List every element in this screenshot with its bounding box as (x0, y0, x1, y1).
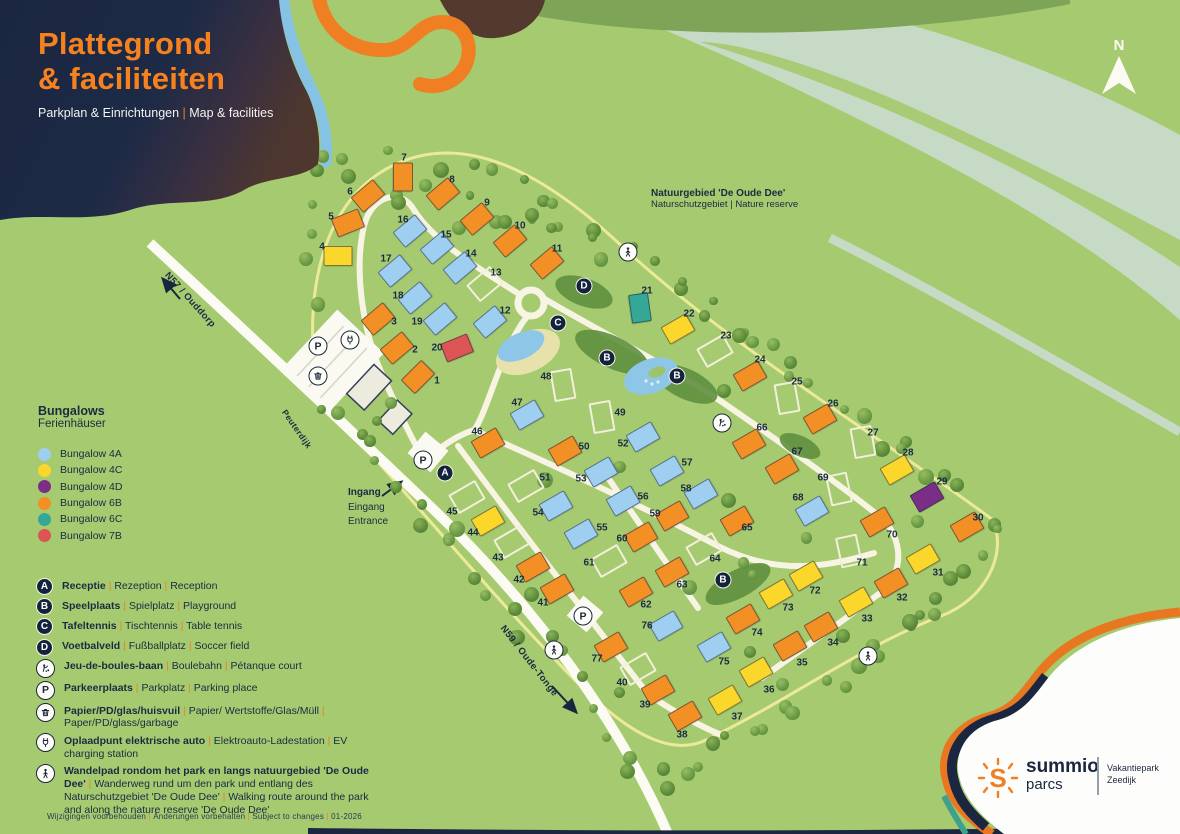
bungalow-49-number: 49 (614, 408, 625, 419)
nature-reserve-label: Natuurgebied 'De Oude Dee' Naturschutzge… (651, 188, 798, 210)
legend-facility-text: Receptie | Rezeption | Reception (62, 578, 217, 592)
tree (650, 256, 660, 266)
legend-bungalow-item: Bungalow 4A (38, 446, 122, 462)
d-icon: D (36, 639, 53, 656)
bungalow-12-number: 12 (499, 306, 510, 317)
park-map-poster: 1234567891011121314151617181920212223242… (0, 0, 1180, 834)
bungalow-68-number: 68 (792, 493, 803, 504)
facility-legend: AReceptie | Rezeption | ReceptionBSpeelp… (36, 578, 388, 820)
bungalow-44-number: 44 (467, 528, 478, 539)
legend-facility-text: Speelplaats | Spielplatz | Playground (62, 598, 236, 612)
bungalow-14-number: 14 (465, 249, 476, 260)
bungalow-23-number: 23 (720, 331, 731, 342)
page-subtitle: Parkplan & Einrichtungen | Map & facilit… (38, 106, 273, 120)
legend-facility-row: PParkeerplaats | Parkplatz | Parking pla… (36, 681, 388, 700)
bungalow-39-number: 39 (639, 700, 650, 711)
bungalow-56-number: 56 (637, 492, 648, 503)
legend-facility-row: BSpeelplaats | Spielplatz | Playground (36, 598, 388, 615)
bungalow-47-number: 47 (511, 398, 522, 409)
bungalow-40-number: 40 (616, 678, 627, 689)
legend-swatch-4A (38, 448, 51, 461)
bungalow-43-number: 43 (492, 553, 503, 564)
tree (978, 550, 989, 561)
bungalow-3-number: 3 (391, 317, 397, 328)
title-line-1: Plattegrond (38, 26, 273, 61)
tree (721, 493, 736, 508)
tree (784, 356, 797, 369)
tree (746, 336, 758, 348)
bungalow-55-number: 55 (596, 523, 607, 534)
bungalow-64-number: 64 (709, 554, 720, 565)
bungalow-72-number: 72 (809, 586, 820, 597)
page-title: Plattegrond & faciliteiten Parkplan & Ei… (38, 26, 273, 120)
bungalow-legend-title: Bungalows (38, 404, 122, 418)
bungalow-4-marker (324, 246, 353, 266)
bungalow-61-number: 61 (583, 558, 594, 569)
title-line-2: & faciliteiten (38, 61, 273, 96)
tree (449, 521, 465, 537)
north-arrow-glyph (1102, 56, 1136, 94)
legend-facility-row: Papier/PD/glas/huisvuil | Papier/ Wertst… (36, 703, 388, 730)
bungalow-69-number: 69 (817, 473, 828, 484)
bungalow-48-number: 48 (540, 372, 551, 383)
walk-icon (36, 764, 55, 783)
entrance-label-nl: Ingang (348, 486, 388, 501)
walk-icon (545, 641, 564, 660)
bungalow-18-number: 18 (392, 291, 403, 302)
legend-facility-row: AReceptie | Rezeption | Reception (36, 578, 388, 595)
bungalow-31-number: 31 (932, 568, 943, 579)
tree (311, 297, 326, 312)
bungalow-11-number: 11 (552, 244, 563, 255)
bungalow-71-number: 71 (856, 558, 867, 569)
bungalow-36-number: 36 (763, 685, 774, 696)
c-icon: C (550, 315, 567, 332)
p-icon: P (36, 681, 55, 700)
legend-facility-row: Jeu-de-boules-baan | Boulebahn | Pétanqu… (36, 659, 388, 678)
a-icon: A (36, 578, 53, 595)
bungalow-33-number: 33 (861, 614, 872, 625)
legend-swatch-6B (38, 497, 51, 510)
legend-facility-text: Tafeltennis | Tischtennis | Table tennis (62, 618, 242, 632)
bungalow-35-number: 35 (796, 658, 807, 669)
bungalow-42-number: 42 (513, 575, 524, 586)
summio-sun-letter: S (989, 763, 1006, 793)
legend-facility-row: CTafeltennis | Tischtennis | Table tenni… (36, 618, 388, 635)
bungalow-66-number: 66 (756, 423, 767, 434)
tree-line-top (470, 0, 1070, 33)
nature-reserve-label-sub: Naturschutzgebiet | Nature reserve (651, 199, 798, 210)
boules-icon (36, 659, 55, 678)
bungalow-21-marker (628, 292, 652, 324)
bungalow-62-number: 62 (640, 600, 651, 611)
bungalow-76-number: 76 (641, 621, 652, 632)
b-icon: B (36, 598, 53, 615)
bungalow-32-number: 32 (896, 593, 907, 604)
tree (744, 646, 756, 658)
tree (776, 678, 789, 691)
tree (480, 590, 491, 601)
walk-icon (859, 647, 878, 666)
brand-name-parcs: parcs (1026, 776, 1063, 793)
bungalow-53-number: 53 (575, 474, 586, 485)
b-icon: B (715, 572, 732, 589)
tree (750, 726, 760, 736)
bungalow-legend-items: Bungalow 4ABungalow 4CBungalow 4DBungalo… (38, 446, 122, 544)
walk-icon (619, 243, 638, 262)
north-arrow: N (1095, 34, 1145, 98)
tree (299, 252, 313, 266)
tree (874, 441, 890, 457)
legend-bungalow-label: Bungalow 4A (60, 448, 122, 460)
tree (720, 731, 729, 740)
tree (911, 515, 924, 528)
tree (706, 736, 720, 750)
brand-park-line2: Zeedijk (1107, 774, 1159, 786)
tree (620, 764, 635, 779)
p-icon: P (574, 607, 593, 626)
bungalow-74-number: 74 (751, 628, 762, 639)
bungalow-63-number: 63 (676, 580, 687, 591)
legend-swatch-6C (38, 513, 51, 526)
legend-bungalow-item: Bungalow 6B (38, 495, 122, 511)
legend-bungalow-label: Bungalow 6B (60, 497, 122, 509)
bungalow-17-number: 17 (380, 254, 391, 265)
trash-icon (36, 703, 55, 722)
tree (594, 252, 608, 266)
bungalow-52-number: 52 (617, 439, 628, 450)
legend-swatch-7B (38, 529, 51, 542)
tree (417, 499, 428, 510)
tree (693, 762, 703, 772)
p-icon: P (309, 337, 328, 356)
entrance-label-de: Eingang (348, 501, 388, 516)
bungalow-34-number: 34 (827, 638, 838, 649)
legend-facility-text: Parkeerplaats | Parkplatz | Parking plac… (64, 681, 257, 695)
tree (364, 435, 375, 446)
bungalow-50-number: 50 (578, 442, 589, 453)
bungalow-19-number: 19 (411, 317, 422, 328)
tree (822, 675, 832, 685)
bungalow-46-number: 46 (471, 427, 482, 438)
legend-bungalow-item: Bungalow 7B (38, 527, 122, 543)
legend-facility-row: DVoetbalveld | Fußballplatz | Soccer fie… (36, 639, 388, 656)
legend-bungalow-label: Bungalow 7B (60, 530, 122, 542)
legend-swatch-4D (38, 480, 51, 493)
bungalow-57-number: 57 (681, 458, 692, 469)
footer-note: Wijzigingen voorbehouden | Änderungen vo… (47, 812, 362, 821)
tree (331, 406, 345, 420)
legend-facility-text: Voetbalveld | Fußballplatz | Soccer fiel… (62, 639, 249, 653)
summio-logo-sun: S (976, 756, 1022, 802)
tree (317, 405, 325, 413)
bungalow-13-number: 13 (490, 268, 501, 279)
header-orange-ribbon (318, 0, 469, 86)
brand-name-summio: summio (1026, 756, 1099, 778)
tree (589, 704, 598, 713)
brand-park-name: Vakantiepark Zeedijk (1107, 762, 1159, 786)
legend-bungalow-label: Bungalow 4D (60, 481, 122, 493)
bungalow-38-number: 38 (676, 730, 687, 741)
bungalow-2-number: 2 (412, 345, 418, 356)
entrance-label-en: Entrance (348, 515, 388, 530)
bungalow-75-number: 75 (718, 657, 729, 668)
legend-bungalow-item: Bungalow 6C (38, 511, 122, 527)
bungalow-65-number: 65 (741, 523, 752, 534)
tree (660, 781, 675, 796)
tree (657, 762, 670, 775)
bungalow-21-number: 21 (641, 286, 652, 297)
bottom-edge-stripe (308, 826, 1180, 834)
boules-icon (713, 414, 732, 433)
legend-facility-text: Oplaadpunt elektrische auto | Elektroaut… (64, 733, 388, 760)
tree (390, 481, 401, 492)
tree (801, 532, 812, 543)
legend-facility-text: Jeu-de-boules-baan | Boulebahn | Pétanqu… (64, 659, 302, 673)
bungalow-58-number: 58 (680, 484, 691, 495)
bungalow-67-number: 67 (791, 447, 802, 458)
bungalow-20-number: 20 (431, 343, 442, 354)
legend-facility-row: Wandelpad rondom het park en langs natuu… (36, 764, 388, 817)
bungalow-1-number: 1 (434, 376, 440, 387)
legend-bungalow-label: Bungalow 6C (60, 513, 122, 525)
ev-icon (341, 331, 360, 350)
bungalow-77-number: 77 (591, 654, 602, 665)
bungalow-25-number: 25 (791, 377, 802, 388)
tree (993, 525, 1002, 534)
bungalow-37-number: 37 (731, 712, 742, 723)
brand-park-line1: Vakantiepark (1107, 762, 1159, 774)
tree (372, 416, 382, 426)
tree (840, 681, 852, 693)
tree (785, 706, 799, 720)
legend-facility-text: Papier/PD/glas/huisvuil | Papier/ Wertst… (64, 703, 388, 730)
entrance-label: Ingang Eingang Entrance (348, 486, 388, 530)
bungalow-59-number: 59 (649, 509, 660, 520)
p-icon: P (414, 451, 433, 470)
bungalow-29-number: 29 (936, 477, 947, 488)
bungalow-legend-subtitle: Ferienhäuser (38, 418, 122, 430)
tree (468, 572, 481, 585)
bungalow-legend: Bungalows Ferienhäuser Bungalow 4ABungal… (38, 404, 122, 544)
bungalow-70-number: 70 (886, 530, 897, 541)
legend-swatch-4C (38, 464, 51, 477)
bungalow-54-number: 54 (532, 508, 543, 519)
tree (767, 338, 780, 351)
nature-reserve-label-bold: Natuurgebied 'De Oude Dee' (651, 188, 798, 199)
tree (929, 592, 942, 605)
tree (370, 456, 379, 465)
tree (709, 297, 718, 306)
legend-facility-row: Oplaadpunt elektrische auto | Elektroaut… (36, 733, 388, 760)
c-icon: C (36, 618, 53, 635)
trash-icon (309, 367, 328, 386)
bungalow-60-number: 60 (616, 534, 627, 545)
legend-facility-text: Wandelpad rondom het park en langs natuu… (64, 764, 388, 817)
bungalow-24-number: 24 (754, 355, 765, 366)
bungalow-41-number: 41 (537, 598, 548, 609)
ev-icon (36, 733, 55, 752)
legend-bungalow-label: Bungalow 4C (60, 464, 122, 476)
b-icon: B (599, 350, 616, 367)
tree (385, 397, 397, 409)
bungalow-28-number: 28 (902, 448, 913, 459)
bungalow-51-number: 51 (539, 473, 550, 484)
north-letter: N (1114, 37, 1125, 54)
bungalow-22-number: 22 (683, 309, 694, 320)
bungalow-30-number: 30 (972, 513, 983, 524)
brand-divider (1097, 757, 1099, 795)
bungalow-73-number: 73 (782, 603, 793, 614)
a-icon: A (437, 465, 454, 482)
tree (857, 408, 872, 423)
tree (950, 478, 964, 492)
bungalow-27-number: 27 (867, 428, 878, 439)
d-icon: D (576, 278, 593, 295)
bungalow-26-number: 26 (827, 399, 838, 410)
bungalow-45-number: 45 (446, 507, 457, 518)
legend-bungalow-item: Bungalow 4D (38, 479, 122, 495)
legend-bungalow-item: Bungalow 4C (38, 462, 122, 478)
tree (738, 557, 750, 569)
b-icon: B (669, 368, 686, 385)
bungalow-4-number: 4 (319, 242, 325, 253)
